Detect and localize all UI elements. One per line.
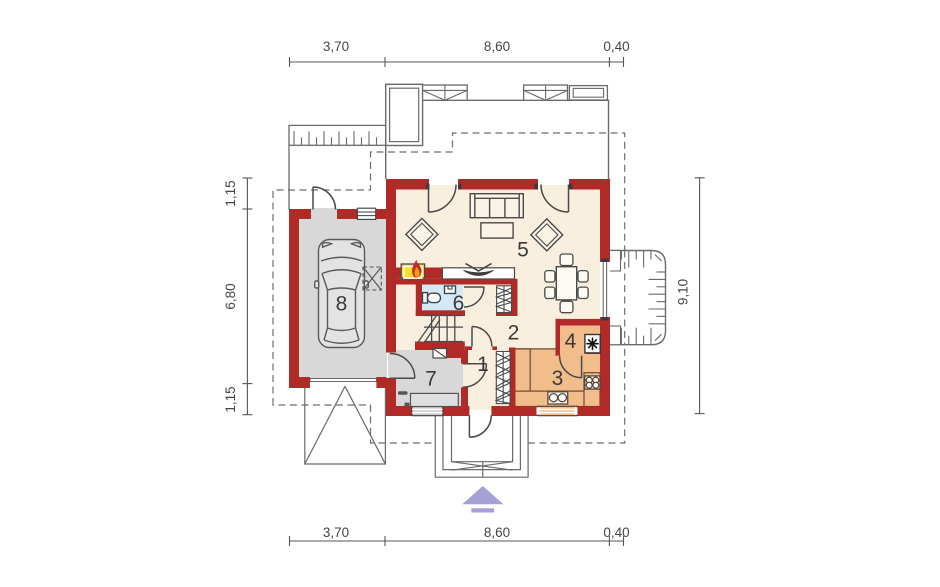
svg-text:6: 6 — [453, 292, 465, 315]
svg-text:0,40: 0,40 — [603, 39, 629, 54]
svg-text:8,60: 8,60 — [484, 39, 510, 54]
svg-text:4: 4 — [565, 330, 577, 353]
svg-text:6,80: 6,80 — [223, 283, 238, 309]
svg-text:3,70: 3,70 — [323, 39, 349, 54]
svg-text:1,15: 1,15 — [223, 180, 238, 206]
svg-text:8,60: 8,60 — [484, 525, 510, 540]
svg-text:1: 1 — [477, 353, 489, 376]
svg-text:1,15: 1,15 — [223, 386, 238, 412]
svg-text:9,10: 9,10 — [676, 279, 691, 305]
svg-text:8: 8 — [336, 293, 348, 316]
svg-text:0,40: 0,40 — [603, 525, 629, 540]
svg-text:5: 5 — [517, 239, 529, 262]
svg-text:3,70: 3,70 — [323, 525, 349, 540]
svg-text:3: 3 — [552, 367, 564, 390]
svg-text:7: 7 — [425, 368, 437, 391]
svg-text:2: 2 — [508, 322, 520, 345]
